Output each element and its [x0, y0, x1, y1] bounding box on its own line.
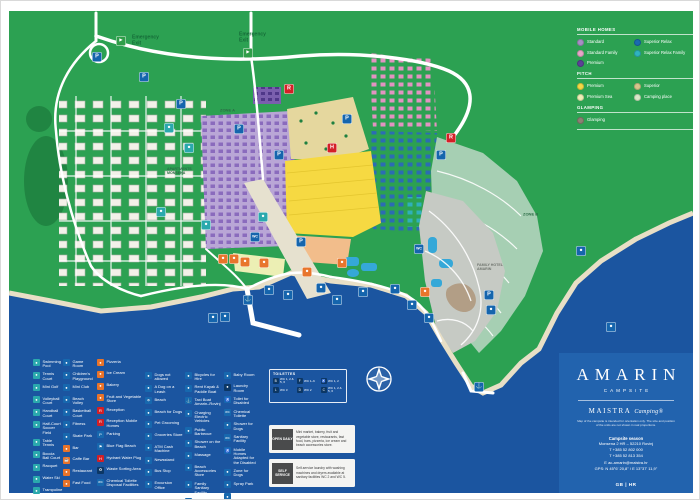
legend-label: Parking: [107, 431, 121, 439]
color-swatch: [634, 60, 641, 67]
legend-item: ●Bus Stop: [145, 469, 183, 477]
toilettes-icon: ♿: [321, 378, 327, 384]
legend-icon: ●: [63, 359, 70, 366]
self-service-box: SELF SERVICE Self-service laundry with w…: [269, 459, 355, 487]
legend-icon: ●: [97, 371, 104, 378]
legend-icon: ●: [224, 481, 231, 488]
map-key-item: Premium Sea: [577, 94, 634, 101]
legend-item: ●Skate Park: [63, 433, 95, 441]
self-service-tag: SELF SERVICE: [272, 463, 293, 484]
map-key-item: [634, 60, 695, 67]
legend-item: ●Tennis Court: [33, 372, 61, 381]
legend-label: Baby Room: [234, 372, 255, 380]
parking-icon[interactable]: P: [437, 151, 446, 160]
legend-item: ●Fitness: [63, 421, 95, 429]
map-key-section-title: PITCH: [577, 71, 695, 79]
emergency-exit-icon[interactable]: ►: [117, 37, 126, 46]
legend-icon: ●: [33, 487, 40, 494]
legend-icon: ♻: [97, 467, 104, 474]
legend-label: Bar: [73, 445, 79, 453]
legend-label: Laundry Room: [234, 384, 259, 393]
map-key-label: Superior Relax Family: [644, 51, 685, 55]
color-swatch: [634, 83, 641, 90]
legend-label: Fitness: [73, 421, 86, 429]
legend-label: Bus Stop: [155, 469, 171, 477]
legend-label: Fast Food: [73, 480, 91, 488]
parking-icon[interactable]: P: [343, 115, 352, 124]
parking-icon[interactable]: P: [275, 151, 284, 160]
legend-label: Handball Court: [43, 409, 62, 418]
legend-icon: ●: [145, 385, 152, 392]
legend-item: ●Bar: [63, 445, 95, 453]
legend-label: Massage: [195, 452, 211, 460]
legend-label: Half-Court Soccer Field: [43, 421, 62, 435]
legend-label: Family Sanitary Facility: [195, 481, 223, 495]
map-key-label: Camping place: [644, 95, 672, 99]
toilettes-item: CWC 1, 2 & 5, 6: [321, 387, 343, 393]
legend-label: Table Tennis: [43, 439, 62, 448]
legend-label: Dogs not allowed: [155, 372, 184, 381]
legend-item: RReception: [97, 407, 143, 415]
legend-item: ●Pizzeria: [97, 359, 143, 367]
legend-item: HHydrant Water Plug: [97, 455, 143, 463]
map-key-section-title: MOBILE HOMES: [577, 27, 695, 35]
beach-icon[interactable]: ●: [265, 286, 274, 295]
toilettes-box: TOILETTES BWC 1, 2 & 5, 6FWC 1–6♿WC 1, 2…: [269, 369, 347, 403]
map-key-label: Glamping: [587, 118, 605, 122]
legend-icon: ●: [33, 359, 40, 366]
legend-item: ●Game Room: [63, 359, 95, 368]
reception-icon[interactable]: R: [285, 85, 294, 94]
legend-icon: ●: [63, 433, 70, 440]
legend-label: Beach Accessories Store: [195, 464, 223, 478]
legend-label: Chemical Toilette: [234, 409, 259, 418]
legend-icon: ●: [97, 394, 104, 401]
legend-icon: ●: [63, 372, 70, 379]
map-key-label: Premium Sea: [587, 95, 612, 99]
beach-icon[interactable]: ●: [425, 314, 434, 323]
legend-label: Spray Park: [234, 481, 254, 489]
legend-item: ●Restaurant: [63, 469, 95, 477]
divider: [578, 400, 674, 401]
color-swatch: [577, 60, 584, 67]
sports-icon[interactable]: ●: [202, 221, 211, 230]
brand-panel: AMARIN CAMPSITE MAISTRA Camping® Map of …: [559, 353, 693, 493]
legend-label: Hydrant Water Plug: [107, 455, 142, 463]
maistra-logo: MAISTRA Camping®: [589, 407, 664, 415]
legend-icon: ●: [33, 396, 40, 403]
toilettes-label: WC 1, 2 & 5, 6: [280, 378, 295, 384]
bakery-icon[interactable]: ●: [338, 259, 347, 268]
sports-icon[interactable]: ●: [165, 124, 174, 133]
legend-item: ●Basketball Court: [63, 409, 95, 418]
legend-item: ●ATM Cash Machine: [145, 444, 183, 453]
legend-item: ●Pet Grooming: [145, 421, 183, 429]
map-key-item: Premium: [577, 83, 634, 90]
sports-icon[interactable]: ●: [259, 213, 268, 222]
marina-icon[interactable]: ⚓: [475, 383, 484, 392]
legend-label: Swimming Pool: [43, 359, 62, 368]
legend-item: ●Ice Cream: [97, 371, 143, 379]
map-key-label: Premium: [587, 61, 604, 65]
legend-icon: ●: [185, 464, 192, 471]
toilettes-title: TOILETTES: [273, 372, 343, 376]
legend-item: ●A Dog on a Leash: [145, 385, 183, 394]
legend-icon: ●: [185, 385, 192, 392]
legend-icon: ☂: [145, 397, 152, 404]
beach-icon[interactable]: ●: [391, 285, 400, 294]
legend-icon: ●: [63, 409, 70, 416]
legend-icon: ●: [33, 421, 40, 428]
legend-item: ●Beach Volley: [63, 396, 95, 405]
legend-item: WCSanitary Facility: [224, 434, 258, 443]
map-key-item: Standard Family: [577, 50, 634, 57]
map-label: ZONE A: [220, 109, 235, 114]
legend-label: Charging Electric Vehicles: [195, 410, 223, 424]
toilettes-item: ♿WC 1, 2: [321, 378, 343, 384]
legend-label: Beach Volley: [73, 396, 96, 405]
map-label: FAMILY HOTEL AMARIN: [477, 263, 503, 271]
toilettes-icon: C: [321, 387, 327, 393]
legend-label: Volleyball Court: [43, 396, 62, 405]
legend-icon: ●: [185, 452, 192, 459]
map-key-item: Superior Relax Family: [634, 50, 695, 57]
legend-icon: ●: [63, 384, 70, 391]
legend-icon: ⚓: [185, 397, 192, 404]
toilettes-item: BWC 1, 2 & 5, 6: [273, 378, 295, 384]
facilities-legend-column: ●Baby Room●Laundry Room♿Toilet for Disab…: [224, 372, 258, 500]
legend-label: Caffe Bar: [73, 457, 90, 465]
legend-label: Game Room: [73, 359, 96, 368]
legend-icon: ●: [33, 451, 40, 458]
toilettes-label: WC 3: [280, 389, 288, 392]
toilettes-label: WC 2: [304, 389, 312, 392]
legend-icon: ●: [185, 440, 192, 447]
legend-item: ●Family Sanitary Facility: [185, 481, 222, 495]
legend-icon: ☕: [63, 457, 70, 464]
bar-icon[interactable]: ●: [230, 255, 239, 264]
parking-icon[interactable]: P: [140, 73, 149, 82]
legend-label: Tennis Court: [43, 372, 62, 381]
color-swatch: [577, 50, 584, 57]
legend-icon: ●: [33, 384, 40, 391]
legend-icon: ●: [145, 433, 152, 440]
legend-item: ●Massage: [185, 452, 222, 460]
beach-icon[interactable]: ●: [317, 284, 326, 293]
legend-item: ●Shower for Dogs: [224, 422, 258, 431]
legend-item: ☂Beach: [145, 397, 183, 405]
legend-item: ●Newsstand: [145, 457, 183, 465]
legend-item: ⚑Blue Flag Beach: [97, 443, 143, 451]
map-key-items: Glamping: [577, 117, 695, 124]
ice-cream-icon[interactable]: ●: [303, 268, 312, 277]
sports-icon[interactable]: ●: [157, 208, 166, 217]
beach-bar-icon[interactable]: ●: [421, 288, 430, 297]
parking-icon[interactable]: P: [485, 291, 494, 300]
legend-icon: ●: [145, 372, 152, 379]
maistra-camping-script: Camping®: [634, 409, 663, 415]
map-key-item: Premium: [577, 60, 634, 67]
legend-icon: ●: [224, 372, 231, 379]
parking-icon[interactable]: P: [235, 125, 244, 134]
legend-icon: ●: [145, 457, 152, 464]
toilettes-icon: D: [297, 387, 303, 393]
reception-mobile-homes-icon[interactable]: R: [447, 134, 456, 143]
legend-label: ATM Cash Machine: [155, 444, 184, 453]
map-key-section-title: GLAMPING: [577, 105, 695, 113]
legend-item: ⚓Taxi Boat Amarin–Rovinj: [185, 397, 222, 406]
legend-icon: ●: [63, 469, 70, 476]
legend-label: Sanitary Facility: [234, 434, 259, 443]
parking-icon[interactable]: P: [177, 100, 186, 109]
legend-item: ●Excursion Office: [145, 481, 183, 490]
legend-label: Blue Flag Beach: [107, 443, 136, 451]
water-sports-icon[interactable]: ●: [221, 313, 230, 322]
toilettes-grid: BWC 1, 2 & 5, 6FWC 1–6♿WC 1, 2LWC 3DWC 2…: [273, 378, 343, 393]
pizzeria-icon[interactable]: ●: [260, 259, 269, 268]
legend-item: ●Dogs not allowed: [145, 372, 183, 381]
legend-item: ♿Toilet for Disabled: [224, 396, 258, 405]
pier-icon[interactable]: ⚓: [244, 296, 253, 305]
legend-item: ●Rent Kayak & Paddle Boat: [185, 385, 222, 394]
legend-label: Newsstand: [155, 457, 175, 465]
parking-icon[interactable]: P: [297, 238, 306, 247]
legend-label: Shower for Dogs: [234, 422, 259, 431]
legend-item: ●Trampoline: [33, 487, 61, 495]
legend-icon: WC: [224, 434, 231, 441]
legend-icon: ●: [185, 372, 192, 379]
map-key-legend: MOBILE HOMESStandardSuperior RelaxStanda…: [577, 23, 695, 130]
legend-item: ●Beach Accessories Store: [185, 464, 222, 478]
legend-label: Restaurant: [73, 469, 93, 477]
legend-label: Bicycles for Hire: [195, 372, 223, 381]
legend-item: ●Handball Court: [33, 409, 61, 418]
legend-label: Basketball Court: [73, 409, 96, 418]
legend-item: ●Racquet: [33, 464, 61, 472]
legend-label: Beach for Dogs: [155, 409, 183, 417]
legend-icon: WC: [224, 409, 231, 416]
legend-label: Children's Playground: [73, 372, 96, 381]
map-key-item: Glamping: [577, 117, 634, 124]
legend-label: Shower on the Beach: [195, 440, 223, 449]
legend-item: WCChemical Toilette: [224, 409, 258, 418]
facilities-legend-column: ●Game Room●Children's Playground●Mini Cl…: [63, 359, 95, 492]
beach-icon[interactable]: ●: [577, 247, 586, 256]
legend-label: Mini Club: [73, 384, 90, 392]
color-swatch: [577, 94, 584, 101]
facilities-legend-column: ●Bicycles for Hire●Rent Kayak & Paddle B…: [185, 372, 222, 500]
beach-icon[interactable]: ●: [284, 291, 293, 300]
legend-item: ●Baby Room: [224, 372, 258, 380]
legend-label: Chemical Toilette Disposal Facilities: [107, 479, 144, 488]
legend-icon: ●: [145, 481, 152, 488]
legend-label: Zone for Dogs: [234, 469, 259, 478]
open-daily-box: OPEN DAILY Mini market, bakery, fruit an…: [269, 425, 355, 453]
legend-label: Taxi Boat Amarin–Rovinj: [195, 397, 223, 406]
legend-icon: ●: [185, 410, 192, 417]
pool-icon[interactable]: ●: [359, 288, 368, 297]
facilities-legend-column: ●Swimming Pool●Tennis Court●Mini Golf●Vo…: [33, 359, 61, 499]
facilities-legend-column: ●Pizzeria●Ice Cream●Bakery●Fruit and Veg…: [97, 359, 143, 491]
toilettes-label: WC 1, 2: [328, 380, 339, 383]
legend-label: Skate Park: [73, 433, 93, 441]
legend-label: Mobile Homes Adapted for the Disabled: [234, 447, 259, 465]
legend-item: ♻Waste Sorting Area: [97, 467, 143, 475]
legend-item: ●Bicycles for Hire: [185, 372, 222, 381]
legend-label: Toilet for Disabled: [234, 396, 259, 405]
map-key-item: Superior Relax: [634, 39, 695, 46]
legend-label: Ice Cream: [107, 371, 125, 379]
legend-icon: ●: [224, 469, 231, 476]
legend-label: Pizzeria: [107, 359, 121, 367]
legend-icon: ●: [33, 464, 40, 471]
legend-icon: R: [97, 419, 104, 426]
legend-icon: ●: [145, 409, 152, 416]
toilettes-label: WC 1, 2 & 5, 6: [328, 387, 343, 393]
legend-label: Beach: [155, 397, 166, 405]
color-swatch: [634, 94, 641, 101]
sanitary-icon[interactable]: WC: [251, 233, 260, 242]
legend-item: ●Laundry Room: [224, 384, 258, 393]
toilettes-icon: B: [273, 378, 279, 384]
beach-icon[interactable]: ●: [408, 301, 417, 310]
legend-icon: H: [97, 455, 104, 462]
legend-item: ●Mini Club: [63, 384, 95, 392]
legend-icon: ●: [33, 439, 40, 446]
legend-label: Bakery: [107, 383, 119, 391]
legend-icon: ●: [97, 359, 104, 366]
legend-icon: P: [97, 431, 104, 438]
legend-label: Waste Sorting Area: [107, 467, 141, 475]
legend-item: ●Swimming Pool: [33, 359, 61, 368]
map-key-item: Standard: [577, 39, 634, 46]
legend-item: ●Mini Golf: [33, 384, 61, 392]
map-key-items: PremiumSuperiorPremium SeaCamping place: [577, 83, 695, 101]
legend-icon: ●: [63, 396, 70, 403]
map-label: ZONE B: [523, 213, 538, 218]
parking-icon[interactable]: P: [93, 53, 102, 62]
toilettes-icon: F: [297, 378, 303, 384]
legend-item: PParking: [97, 431, 143, 439]
legend-label: Reception Mobile Homes: [107, 419, 144, 428]
legend-label: Boccia Ball Court: [43, 451, 62, 460]
color-swatch: [634, 50, 641, 57]
beach-icon[interactable]: ●: [487, 306, 496, 315]
legend-label: Rent Kayak & Paddle Boat: [195, 385, 223, 394]
color-swatch: [577, 83, 584, 90]
legend-icon: ●: [224, 422, 231, 429]
legend-item: ●Fruit and Vegetable Store: [97, 394, 143, 403]
restaurant-icon[interactable]: ●: [219, 255, 228, 264]
legend-label: Rent a Sunbed: [234, 493, 259, 500]
hydrant-icon[interactable]: H: [328, 144, 337, 153]
legend-label: Trampoline: [43, 487, 63, 495]
map-key-label: Premium: [587, 84, 604, 88]
map-key-item: Camping place: [634, 94, 695, 101]
legend-label: Groceries Store: [155, 433, 183, 441]
legend-icon: ●: [63, 421, 70, 428]
map-key-items: StandardSuperior RelaxStandard FamilySup…: [577, 39, 695, 67]
legend-icon: ⚑: [97, 443, 104, 450]
campsite-map-page: { "map": { "labels": [ {"text": "Emergen…: [0, 0, 700, 500]
sanitary-icon[interactable]: WC: [415, 245, 424, 254]
legend-icon: ●: [63, 480, 70, 487]
legend-icon: ●: [145, 421, 152, 428]
legend-item: ●Half-Court Soccer Field: [33, 421, 61, 435]
legend-item: ●Beach for Dogs: [145, 409, 183, 417]
legend-icon: ●: [185, 427, 192, 434]
legend-icon: ●: [224, 493, 231, 500]
language-switcher[interactable]: GB | HR: [616, 482, 637, 487]
legend-item: ●Boccia Ball Court: [33, 451, 61, 460]
open-daily-tag: OPEN DAILY: [272, 429, 293, 450]
shower-icon[interactable]: ●: [333, 296, 342, 305]
legend-label: A Dog on a Leash: [155, 385, 184, 394]
legend-icon: ♿: [224, 447, 231, 454]
fast-food-icon[interactable]: ●: [241, 258, 250, 267]
legend-label: Pet Grooming: [155, 421, 180, 429]
legend-label: Racquet: [43, 464, 58, 472]
map-label: Emergency Exit: [239, 32, 266, 44]
brand-subtitle: CAMPSITE: [604, 388, 651, 393]
color-swatch: [577, 117, 584, 124]
legend-icon: R: [97, 407, 104, 414]
toilettes-item: FWC 1–6: [297, 378, 319, 384]
map-label: APARTMENTS MONSENA: [167, 167, 192, 175]
legend-label: Reception: [107, 407, 125, 415]
legend-label: Water Ski: [43, 476, 60, 484]
toilettes-icon: L: [273, 387, 279, 393]
legend-item: ●Water Ski: [33, 476, 61, 484]
beach-icon[interactable]: ●: [607, 323, 616, 332]
legend-icon: WC: [97, 479, 104, 486]
water-sports-icon[interactable]: ●: [209, 314, 218, 323]
legend-icon: ●: [224, 384, 231, 391]
maistra-wordmark: MAISTRA: [589, 407, 631, 415]
gps-coordinates: GPS: N 45°6' 20,8'' / E 13°37' 11,9'': [595, 466, 658, 472]
legend-item: ●Children's Playground: [63, 372, 95, 381]
map-key-label: Superior Relax: [644, 40, 672, 44]
legend-item: ●Groceries Store: [145, 433, 183, 441]
map-disclaimer: Map of the campsite is intended for orie…: [576, 419, 676, 428]
open-daily-text: Mini market, bakery, fruit and vegetable…: [296, 430, 352, 448]
toilettes-item: DWC 2: [297, 387, 319, 393]
legend-item: ●Fast Food: [63, 480, 95, 488]
legend-item: ●Charging Electric Vehicles: [185, 410, 222, 424]
legend-icon: ●: [145, 469, 152, 476]
brand-name: AMARIN: [577, 365, 682, 385]
sports-icon[interactable]: ●: [185, 144, 194, 153]
legend-item: ●Table Tennis: [33, 439, 61, 448]
divider: [577, 129, 695, 130]
legend-item: WCChemical Toilette Disposal Facilities: [97, 479, 143, 488]
emergency-exit-icon[interactable]: ►: [244, 49, 253, 58]
legend-item: ●Public Barbecue: [185, 427, 222, 436]
legend-item: ●Bakery: [97, 383, 143, 391]
legend-label: Excursion Office: [155, 481, 184, 490]
legend-label: Public Barbecue: [195, 427, 223, 436]
legend-item: ♿Mobile Homes Adapted for the Disabled: [224, 447, 258, 465]
map-key-label: Standard Family: [587, 51, 618, 55]
legend-item: ●Zone for Dogs: [224, 469, 258, 478]
facilities-legend-column: ●Dogs not allowed●A Dog on a Leash☂Beach…: [145, 372, 183, 493]
map-key-label: Standard: [587, 40, 604, 44]
legend-item: ●Volleyball Court: [33, 396, 61, 405]
legend-icon: ●: [33, 476, 40, 483]
color-swatch: [634, 39, 641, 46]
legend-item: ☕Caffe Bar: [63, 457, 95, 465]
self-service-text: Self-service laundry with washing machin…: [296, 466, 352, 479]
